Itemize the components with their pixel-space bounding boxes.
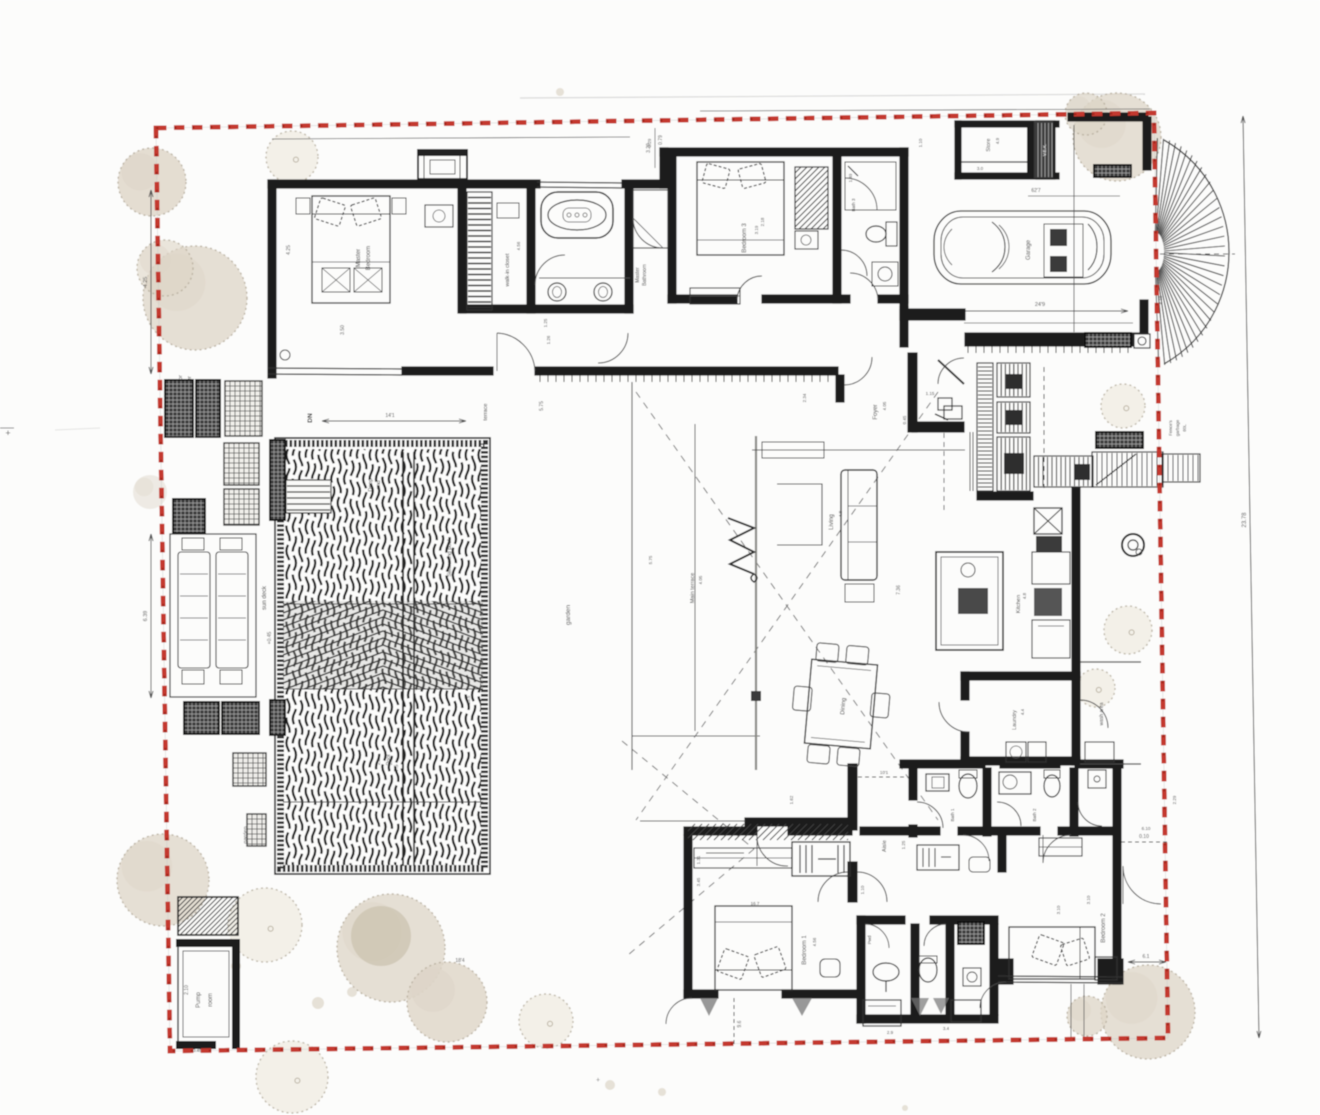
svg-text:6.10: 6.10 [1142,826,1151,831]
svg-text:2.9: 2.9 [887,1030,894,1035]
svg-text:60L: 60L [1182,424,1187,432]
svg-text:Fence's: Fence's [1168,419,1173,435]
svg-text:Bedroom: Bedroom [366,246,372,270]
svg-text:5.75: 5.75 [648,555,653,564]
svg-text:Laundry: Laundry [1012,710,1018,730]
svg-text:Bath 2: Bath 2 [1032,808,1037,822]
svg-text:1.26: 1.26 [546,335,551,344]
svg-text:4.25: 4.25 [286,245,292,255]
svg-text:2.6: 2.6 [388,758,393,765]
svg-text:4.05: 4.05 [882,401,887,410]
svg-text:5.75: 5.75 [539,401,545,411]
svg-text:terrace: terrace [483,403,489,420]
svg-text:1.10: 1.10 [860,885,865,894]
svg-text:0.79: 0.79 [658,135,664,145]
svg-text:1.62: 1.62 [789,795,794,804]
svg-text:25.5: 25.5 [466,695,471,704]
svg-text:Bath 3: Bath 3 [851,198,856,212]
svg-text:Master: Master [635,267,641,283]
svg-text:4.25: 4.25 [143,277,149,288]
svg-text:V.E.K.: V.E.K. [1042,144,1047,156]
svg-text:4.8: 4.8 [1022,592,1027,599]
svg-text:Aisle: Aisle [882,840,888,852]
svg-text:9.6: 9.6 [737,1020,743,1027]
svg-text:Deep: Deep [368,478,374,491]
svg-text:0.10: 0.10 [1139,834,1149,840]
svg-text:2.10: 2.10 [184,985,190,995]
svg-text:3.45: 3.45 [696,877,701,886]
svg-text:Garage: Garage [1026,239,1032,260]
svg-text:2.6: 2.6 [376,758,381,765]
svg-text:room: room [208,993,214,1007]
svg-text:1.25: 1.25 [901,840,906,849]
svg-text:24'9: 24'9 [1035,302,1045,308]
svg-text:Bath 1: Bath 1 [950,808,955,822]
svg-text:Living: Living [829,514,835,530]
svg-text:4.4: 4.4 [1020,708,1025,715]
svg-text:sun deck: sun deck [262,585,268,610]
svg-text:Bathroom: Bathroom [642,264,648,286]
svg-text:Main terrace: Main terrace [690,573,696,604]
svg-text:Pwd: Pwd [867,935,872,944]
svg-text:18'4: 18'4 [455,958,465,964]
svg-text:1.31: 1.31 [696,855,701,864]
svg-text:1.10: 1.10 [918,138,923,147]
svg-text:garbage: garbage [1175,419,1180,436]
svg-text:2.29: 2.29 [1172,795,1177,804]
svg-text:4.9: 4.9 [995,137,1000,144]
svg-text:16.7: 16.7 [751,901,760,906]
svg-text:Pump: Pump [196,992,202,1008]
svg-text:Master: Master [356,249,362,267]
svg-text:DN: DN [307,413,314,423]
svg-text:3.10: 3.10 [1086,895,1091,904]
svg-text:4.8: 4.8 [838,510,843,517]
svg-text:4.05: 4.05 [698,575,703,584]
svg-text:Foyer: Foyer [873,404,879,419]
svg-text:1.15: 1.15 [926,391,935,396]
svg-text:4.56: 4.56 [812,937,817,946]
svg-text:Bedroom 3: Bedroom 3 [742,223,748,253]
svg-text:Store: Store [986,138,992,151]
svg-text:6.39: 6.39 [143,611,149,622]
svg-text:3.19: 3.19 [754,225,759,234]
svg-text:+: + [596,1077,600,1084]
svg-text:3.10: 3.10 [1056,905,1061,914]
svg-text:7.36: 7.36 [896,585,902,595]
svg-text:3.0: 3.0 [977,166,984,171]
svg-text:end: end [376,480,382,489]
svg-text:4.56: 4.56 [516,241,521,250]
svg-text:Bedroom 2: Bedroom 2 [1101,913,1107,943]
svg-text:1.49: 1.49 [848,173,853,182]
svg-text:garden: garden [243,826,249,843]
svg-text:62'7: 62'7 [1031,188,1041,194]
svg-text:14'1: 14'1 [385,413,395,419]
svg-text:+0.45: +0.45 [267,631,273,644]
svg-text:3.4: 3.4 [943,1026,950,1031]
svg-text:+: + [5,428,10,438]
svg-text:10'1: 10'1 [880,770,889,775]
svg-text:7.5: 7.5 [394,764,400,771]
svg-text:2.18: 2.18 [760,217,765,226]
svg-text:6.1: 6.1 [1143,954,1150,960]
svg-text:3.50: 3.50 [340,325,346,335]
svg-text:Bedroom 1: Bedroom 1 [802,935,808,965]
svg-text:3.29: 3.29 [647,138,652,147]
svg-text:0.45: 0.45 [902,415,907,424]
svg-text:2.34: 2.34 [802,393,807,402]
svg-text:1.25: 1.25 [543,318,548,327]
svg-text:garden: garden [565,605,572,626]
svg-text:23.78: 23.78 [1242,512,1248,528]
svg-text:walk-in closet: walk-in closet [505,253,511,287]
svg-text:Swimming pool: Swimming pool [447,539,453,576]
